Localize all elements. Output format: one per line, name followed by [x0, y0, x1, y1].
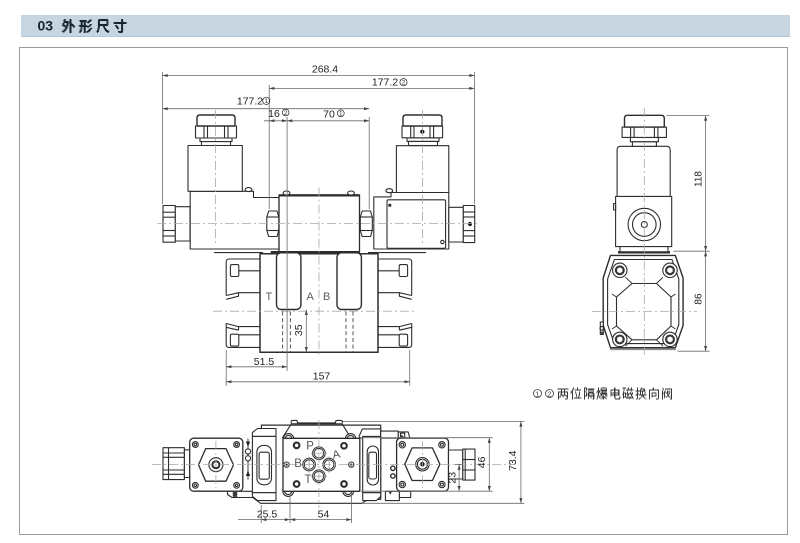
svg-text:177.2: 177.2 — [372, 77, 398, 89]
svg-text:268.4: 268.4 — [312, 64, 338, 76]
svg-text:B: B — [323, 291, 330, 303]
svg-text:T: T — [266, 291, 273, 303]
svg-text:16: 16 — [268, 108, 280, 120]
svg-text:03: 03 — [38, 18, 54, 34]
svg-text:T: T — [305, 474, 312, 486]
svg-text:23: 23 — [446, 472, 458, 484]
svg-text:1: 1 — [339, 112, 343, 118]
svg-text:25.5: 25.5 — [257, 508, 278, 520]
svg-text:54: 54 — [318, 508, 330, 520]
svg-text:2: 2 — [284, 111, 288, 117]
svg-text:35: 35 — [293, 324, 305, 336]
svg-text:46: 46 — [476, 456, 488, 468]
svg-text:1: 1 — [536, 391, 540, 398]
svg-text:73.4: 73.4 — [507, 450, 519, 471]
svg-text:86: 86 — [694, 293, 705, 305]
svg-text:P: P — [306, 441, 314, 453]
svg-text:A: A — [307, 291, 315, 303]
svg-text:2: 2 — [548, 391, 552, 398]
svg-text:B: B — [294, 458, 302, 470]
svg-text:118: 118 — [694, 171, 705, 187]
svg-text:177.2: 177.2 — [237, 95, 263, 107]
svg-text:157: 157 — [313, 370, 331, 382]
svg-text:51.5: 51.5 — [254, 356, 275, 368]
svg-text:70: 70 — [323, 108, 335, 120]
